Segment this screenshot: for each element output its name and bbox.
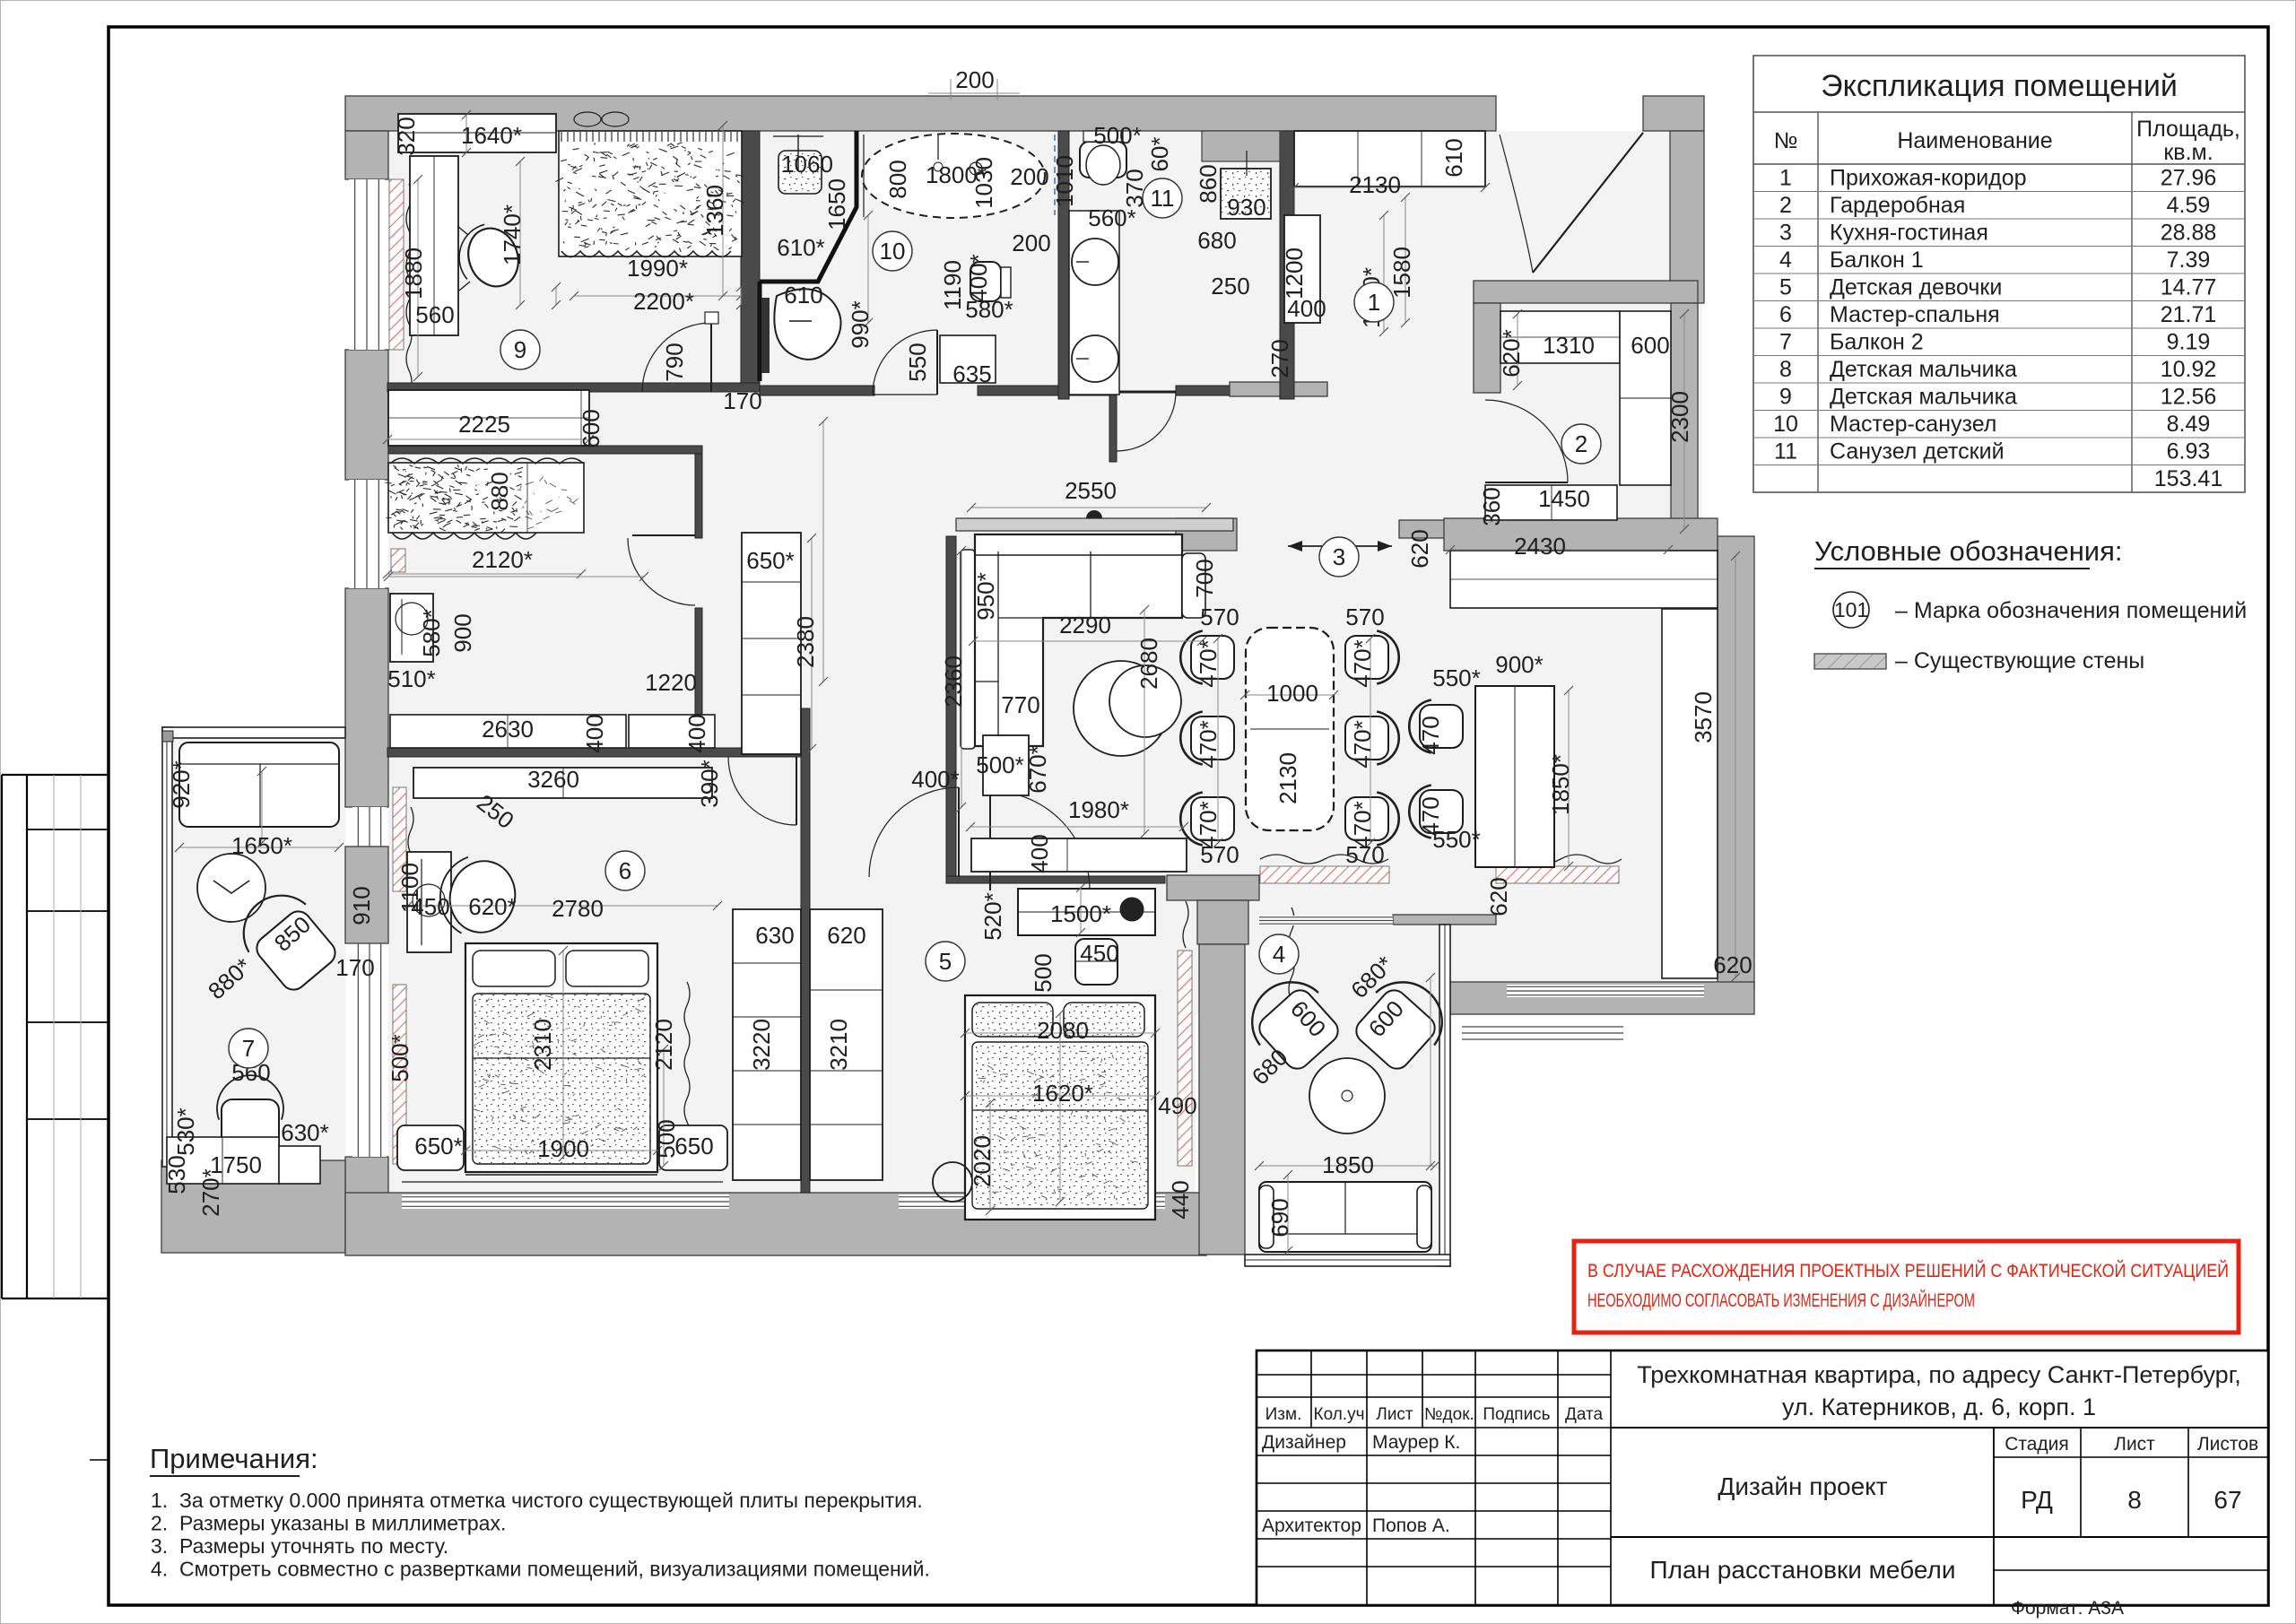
svg-text:400*: 400*	[965, 254, 992, 302]
svg-text:770: 770	[1001, 691, 1039, 718]
svg-text:570: 570	[1200, 604, 1239, 630]
svg-text:610: 610	[784, 282, 822, 308]
svg-text:620*: 620*	[1498, 329, 1525, 378]
svg-text:Подпись: Подпись	[1483, 1405, 1550, 1424]
svg-text:Смотреть совместно с развертка: Смотреть совместно с развертками помещен…	[179, 1558, 930, 1581]
svg-text:Дизайн проект: Дизайн проект	[1718, 1472, 1887, 1500]
svg-text:Мастер-спальня: Мастер-спальня	[1830, 302, 2000, 327]
svg-text:630*: 630*	[281, 1119, 329, 1146]
svg-text:560: 560	[415, 301, 454, 328]
svg-text:НЕОБХОДИМО СОГЛАСОВАТЬ ИЗМЕНЕН: НЕОБХОДИМО СОГЛАСОВАТЬ ИЗМЕНЕНИЯ С ДИЗАЙ…	[1587, 1290, 1975, 1311]
svg-text:3: 3	[1779, 220, 1792, 245]
svg-text:4: 4	[1273, 941, 1285, 968]
svg-text:500*: 500*	[976, 751, 1024, 778]
svg-text:690: 690	[1266, 1198, 1293, 1237]
svg-text:400*: 400*	[911, 766, 960, 793]
svg-text:1310: 1310	[1543, 332, 1595, 359]
svg-text:12.56: 12.56	[2161, 384, 2217, 409]
svg-text:4.59: 4.59	[2167, 193, 2211, 218]
svg-text:6: 6	[619, 857, 631, 884]
svg-text:1200: 1200	[1281, 248, 1308, 300]
svg-text:1500*: 1500*	[1050, 900, 1111, 927]
svg-text:1620*: 1620*	[1032, 1080, 1093, 1107]
svg-text:2310: 2310	[529, 1019, 556, 1071]
svg-text:8.49: 8.49	[2167, 412, 2211, 437]
svg-text:– Марка обозначения помещений: – Марка обозначения помещений	[1895, 598, 2247, 623]
svg-text:8: 8	[2127, 1486, 2142, 1514]
svg-text:101: 101	[1834, 598, 1868, 621]
svg-text:2290: 2290	[1059, 612, 1111, 638]
svg-text:21.71: 21.71	[2161, 302, 2217, 327]
svg-text:4.: 4.	[151, 1558, 168, 1581]
svg-text:650*: 650*	[746, 547, 795, 574]
svg-text:Трехкомнатная квартира, по адр: Трехкомнатная квартира, по адресу Санкт-…	[1637, 1361, 2241, 1388]
svg-text:Площадь,: Площадь,	[2136, 117, 2240, 142]
svg-text:1740*: 1740*	[499, 204, 526, 265]
svg-text:2120: 2120	[650, 1019, 677, 1071]
svg-text:Стадия: Стадия	[2005, 1434, 2069, 1455]
svg-text:470*: 470*	[1349, 639, 1376, 688]
svg-text:920*: 920*	[168, 760, 195, 809]
svg-text:Лист: Лист	[1376, 1405, 1413, 1424]
svg-text:580*: 580*	[418, 609, 445, 657]
svg-text:520*: 520*	[979, 892, 1006, 941]
svg-text:470*: 470*	[1349, 720, 1376, 769]
svg-text:9.19: 9.19	[2167, 329, 2211, 354]
svg-text:270: 270	[1266, 339, 1293, 378]
svg-text:580*: 580*	[965, 296, 1013, 323]
svg-text:560*: 560*	[1088, 204, 1136, 231]
svg-text:900: 900	[449, 613, 476, 652]
svg-text:Маурер К.: Маурер К.	[1372, 1432, 1460, 1453]
svg-text:Примечания:: Примечания:	[150, 1443, 318, 1474]
svg-text:670*: 670*	[1024, 745, 1051, 794]
svg-text:Размеры указаны в миллиметрах.: Размеры указаны в миллиметрах.	[179, 1512, 506, 1535]
svg-text:1010: 1010	[1051, 155, 1078, 207]
svg-text:620: 620	[1485, 877, 1512, 916]
svg-text:Детская девочки: Детская девочки	[1830, 274, 2002, 300]
svg-text:1360: 1360	[701, 185, 728, 237]
svg-text:910: 910	[348, 886, 375, 925]
svg-text:1990*: 1990*	[627, 255, 688, 282]
svg-text:530*: 530*	[172, 1107, 199, 1156]
svg-text:10: 10	[880, 238, 906, 265]
svg-text:7: 7	[242, 1035, 255, 1062]
svg-text:8: 8	[1779, 357, 1792, 382]
svg-text:620: 620	[1406, 529, 1433, 568]
svg-text:РД: РД	[2021, 1486, 2053, 1514]
svg-text:490: 490	[1158, 1092, 1196, 1119]
svg-text:2.: 2.	[151, 1512, 168, 1535]
svg-text:550*: 550*	[1432, 826, 1481, 853]
svg-text:9: 9	[514, 336, 526, 363]
svg-text:635: 635	[952, 360, 991, 387]
svg-text:610*: 610*	[777, 234, 825, 261]
svg-text:2430: 2430	[1514, 533, 1566, 560]
svg-text:2: 2	[1779, 193, 1792, 218]
svg-text:620*: 620*	[468, 893, 517, 920]
svg-text:500: 500	[1030, 953, 1057, 992]
svg-text:1880: 1880	[400, 248, 427, 300]
svg-text:Лист: Лист	[2114, 1434, 2155, 1455]
svg-text:450: 450	[411, 893, 449, 920]
svg-text:14.77: 14.77	[2161, 274, 2217, 300]
svg-text:950*: 950*	[972, 572, 999, 621]
svg-text:1030: 1030	[970, 157, 997, 209]
svg-text:1900: 1900	[537, 1135, 589, 1162]
svg-text:67: 67	[2213, 1486, 2241, 1514]
svg-text:2380: 2380	[792, 616, 819, 668]
svg-text:3210: 3210	[825, 1019, 852, 1071]
svg-text:570: 570	[1345, 604, 1384, 630]
svg-text:Гардеробная: Гардеробная	[1830, 193, 1965, 218]
svg-text:Балкон 2: Балкон 2	[1830, 329, 1924, 354]
svg-text:3: 3	[1333, 543, 1345, 570]
svg-text:680: 680	[1197, 227, 1236, 254]
svg-text:10: 10	[1773, 412, 1798, 437]
svg-text:Изм.: Изм.	[1265, 1405, 1302, 1424]
svg-text:Архитектор: Архитектор	[1262, 1515, 1361, 1536]
svg-text:620: 620	[1713, 951, 1752, 978]
svg-text:11: 11	[1151, 185, 1175, 212]
svg-text:170: 170	[723, 387, 761, 414]
svg-text:1650*: 1650*	[231, 832, 292, 859]
svg-text:1850*: 1850*	[1547, 754, 1574, 815]
svg-text:400: 400	[683, 714, 710, 752]
svg-text:1650: 1650	[823, 178, 850, 230]
svg-text:530: 530	[163, 1155, 190, 1194]
svg-text:990*: 990*	[847, 300, 874, 349]
svg-text:3260: 3260	[527, 766, 579, 793]
svg-text:2680: 2680	[1135, 638, 1162, 690]
svg-text:1220: 1220	[645, 669, 697, 696]
svg-text:470*: 470*	[1195, 801, 1222, 849]
svg-text:1980*: 1980*	[1068, 796, 1129, 823]
svg-text:3220: 3220	[748, 1019, 775, 1071]
svg-text:Экспликация помещений: Экспликация помещений	[1821, 69, 2178, 103]
svg-text:2080: 2080	[1037, 1017, 1089, 1044]
svg-text:440: 440	[1167, 1180, 1194, 1219]
svg-text:650: 650	[674, 1133, 713, 1159]
svg-text:Детская мальчика: Детская мальчика	[1830, 357, 2017, 382]
svg-text:Наименование: Наименование	[1897, 128, 2052, 153]
svg-text:Попов А.: Попов А.	[1372, 1515, 1450, 1536]
svg-text:2200*: 2200*	[633, 288, 694, 315]
svg-text:700: 700	[1191, 559, 1218, 597]
svg-text:6.93: 6.93	[2167, 439, 2211, 464]
svg-text:№док.: №док.	[1424, 1405, 1474, 1424]
svg-text:№: №	[1774, 128, 1798, 153]
svg-text:7: 7	[1779, 329, 1792, 354]
svg-text:27.96: 27.96	[2161, 165, 2217, 190]
svg-text:2120*: 2120*	[472, 546, 533, 573]
svg-text:320: 320	[393, 117, 420, 155]
svg-text:2360: 2360	[940, 656, 967, 708]
svg-text:Дата: Дата	[1565, 1405, 1604, 1424]
svg-text:153.41: 153.41	[2154, 466, 2222, 491]
svg-text:250: 250	[1211, 273, 1249, 300]
svg-text:Кухня-гостиная: Кухня-гостиная	[1830, 220, 1988, 245]
svg-text:930: 930	[1227, 194, 1265, 221]
svg-text:10.92: 10.92	[2161, 357, 2217, 382]
svg-text:1: 1	[1368, 289, 1380, 316]
svg-text:200: 200	[1012, 230, 1050, 256]
svg-text:Размеры уточнять по месту.: Размеры уточнять по месту.	[179, 1534, 448, 1558]
svg-text:900*: 900*	[1495, 651, 1544, 678]
svg-text:1060: 1060	[781, 151, 833, 178]
svg-text:170: 170	[335, 954, 374, 981]
svg-text:5: 5	[1779, 274, 1792, 300]
svg-text:610: 610	[1440, 138, 1467, 177]
svg-text:510*: 510*	[387, 665, 436, 692]
svg-text:400: 400	[581, 714, 608, 752]
svg-text:Формат: А3А: Формат: А3А	[2011, 1598, 2124, 1619]
svg-text:450: 450	[1080, 940, 1118, 967]
svg-text:Дизайнер: Дизайнер	[1262, 1432, 1346, 1453]
svg-text:11: 11	[1774, 439, 1797, 464]
svg-text:4: 4	[1779, 248, 1792, 273]
svg-text:ул. Катерников, д. 6, корп. 1: ул. Катерников, д. 6, корп. 1	[1782, 1394, 2096, 1420]
svg-text:470*: 470*	[1195, 639, 1222, 688]
svg-text:400: 400	[1026, 834, 1053, 873]
svg-text:За отметку 0.000 принята отмет: За отметку 0.000 принята отметка чистого…	[179, 1489, 923, 1512]
svg-text:1580: 1580	[1388, 247, 1415, 299]
svg-text:3.: 3.	[151, 1534, 168, 1558]
svg-text:390*: 390*	[696, 760, 723, 808]
svg-text:400: 400	[1287, 295, 1326, 322]
svg-text:360: 360	[1478, 487, 1505, 525]
svg-text:Прихожая-коридор: Прихожая-коридор	[1830, 165, 2027, 190]
svg-text:Мастер-санузел: Мастер-санузел	[1830, 412, 1996, 437]
svg-text:500*: 500*	[1093, 122, 1142, 149]
svg-text:2300: 2300	[1666, 391, 1693, 443]
svg-text:1.: 1.	[151, 1489, 168, 1512]
svg-text:28.88: 28.88	[2161, 220, 2217, 245]
svg-text:600: 600	[578, 409, 604, 447]
svg-text:860: 860	[1195, 164, 1222, 203]
svg-text:470*: 470*	[1195, 720, 1222, 769]
svg-text:Условные обозначения:: Условные обозначения:	[1814, 535, 2123, 567]
svg-text:470*: 470*	[1349, 801, 1376, 849]
svg-text:1190: 1190	[939, 260, 966, 310]
svg-text:500*: 500*	[387, 1034, 413, 1082]
svg-text:1: 1	[1779, 165, 1792, 190]
svg-text:200: 200	[1010, 163, 1048, 190]
svg-text:630: 630	[755, 922, 794, 949]
svg-text:650*: 650*	[414, 1133, 463, 1159]
svg-text:1450: 1450	[1538, 485, 1590, 512]
svg-text:270*: 270*	[197, 1168, 224, 1217]
svg-text:– Существующие стены: – Существующие стены	[1895, 648, 2144, 673]
svg-text:200: 200	[955, 66, 994, 93]
svg-text:5: 5	[939, 948, 952, 975]
svg-text:2130: 2130	[1349, 171, 1401, 198]
svg-text:60*: 60*	[1146, 136, 1173, 171]
svg-text:620: 620	[827, 922, 865, 949]
svg-text:1850: 1850	[1322, 1151, 1374, 1178]
svg-text:470: 470	[1417, 716, 1444, 754]
svg-text:1000: 1000	[1266, 680, 1318, 707]
svg-text:7.39: 7.39	[2167, 248, 2211, 273]
svg-text:600: 600	[1631, 332, 1669, 359]
svg-text:В СЛУЧАЕ РАСХОЖДЕНИЯ ПРОЕКТНЫХ: В СЛУЧАЕ РАСХОЖДЕНИЯ ПРОЕКТНЫХ РЕШЕНИЙ С…	[1587, 1260, 2229, 1281]
svg-text:2225: 2225	[458, 411, 510, 438]
svg-text:Балкон 1: Балкон 1	[1830, 248, 1924, 273]
svg-text:1640*: 1640*	[461, 122, 522, 149]
svg-text:Санузел детский: Санузел детский	[1830, 439, 2005, 464]
svg-text:кв.м.: кв.м.	[2163, 140, 2213, 165]
svg-text:2: 2	[1575, 430, 1587, 457]
svg-text:9: 9	[1779, 384, 1792, 409]
svg-text:790: 790	[661, 343, 688, 381]
svg-text:6: 6	[1779, 302, 1792, 327]
svg-text:550: 550	[904, 343, 931, 381]
svg-text:2630: 2630	[482, 716, 534, 743]
svg-text:План расстановки мебели: План расстановки мебели	[1650, 1556, 1956, 1584]
svg-text:2130: 2130	[1274, 752, 1301, 804]
svg-text:2020: 2020	[969, 1135, 996, 1187]
svg-text:880: 880	[486, 472, 513, 510]
svg-text:Детская мальчика: Детская мальчика	[1830, 384, 2017, 409]
svg-text:Кол.уч: Кол.уч	[1314, 1405, 1365, 1424]
svg-text:800: 800	[884, 160, 911, 198]
svg-text:3570: 3570	[1690, 691, 1717, 743]
svg-text:2780: 2780	[552, 895, 604, 922]
svg-text:500: 500	[653, 1119, 680, 1158]
svg-text:550*: 550*	[1432, 664, 1481, 691]
svg-text:Листов: Листов	[2197, 1434, 2258, 1455]
svg-text:2550: 2550	[1065, 477, 1117, 504]
